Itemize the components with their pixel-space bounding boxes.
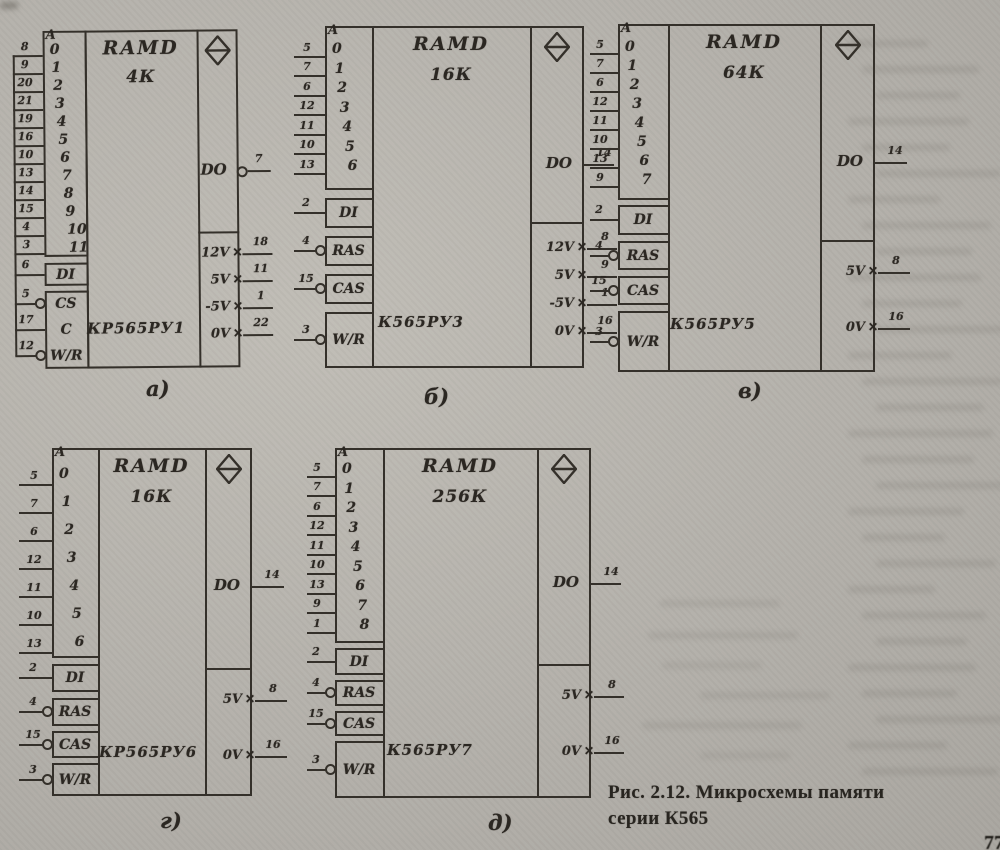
address-bit-label: 11 (69, 240, 89, 255)
address-pin-line (14, 181, 44, 183)
address-bit-label: 3 (67, 551, 77, 566)
control-pin-line (307, 692, 326, 694)
address-pin-number: 11 (291, 120, 323, 132)
output-column-divider (537, 664, 591, 666)
power-pin-line (255, 756, 287, 758)
address-pin-number: 9 (301, 598, 333, 610)
address-bit-label: 4 (351, 540, 361, 555)
control-label-W-R: W/R (45, 348, 87, 364)
address-bit-label: 5 (58, 132, 68, 147)
chip-capacity-label: 64К (668, 64, 820, 82)
output-column-divider (198, 231, 239, 233)
power-pin-line (255, 700, 287, 702)
address-pin-line (590, 53, 618, 55)
address-pin-line (14, 163, 44, 165)
chip-part-number: К565РУ7 (387, 742, 473, 758)
address-pin-number: 13 (584, 153, 616, 165)
address-pin-line (294, 134, 325, 136)
control-label-CAS: CAS (325, 281, 372, 297)
address-pin-number: 6 (18, 526, 50, 538)
address-bit-label: 10 (67, 222, 87, 237)
control-pin-number: 15 (18, 729, 48, 741)
control-pin-line (19, 677, 52, 679)
address-pin-line (590, 148, 618, 150)
power-pin-line (243, 307, 273, 309)
bleed-through-smudge (862, 378, 1000, 385)
power-input-mark: ✕ (245, 749, 255, 761)
output-label: DO (539, 575, 579, 590)
address-pin-line (19, 652, 52, 654)
power-label--5V: -5V (199, 299, 230, 314)
address-bit-label: 0 (625, 40, 635, 55)
address-bit-label: 1 (335, 62, 345, 77)
power-input-mark: ✕ (868, 265, 878, 277)
address-pin-line (19, 568, 52, 570)
power-pin-line (594, 752, 624, 754)
bleed-through-smudge (862, 690, 957, 697)
address-pin-number: 12 (301, 520, 333, 532)
control-label-DI: DI (335, 654, 383, 670)
chip-part-number: К565РУ5 (670, 316, 756, 332)
power-label-12V: 12V (530, 240, 574, 255)
address-pin-number: 6 (301, 501, 333, 513)
control-pin-line (307, 723, 326, 725)
power-pin-number: 16 (260, 739, 286, 751)
power-pin-line (594, 696, 624, 698)
bleed-through-smudge (848, 742, 947, 749)
power-label-5V: 5V (530, 268, 574, 283)
address-pin-line (307, 612, 335, 614)
control-pin-line (294, 339, 316, 341)
address-bit-label: 0 (332, 42, 342, 57)
chip-type-label: RAMD (383, 456, 537, 476)
chip-sublabel: в) (738, 380, 762, 402)
bleed-through-smudge (862, 534, 945, 541)
address-pin-number: 13 (301, 579, 333, 591)
address-pin-line (14, 199, 44, 201)
bleed-through-smudge (876, 716, 1000, 723)
control-pin-number: 12 (11, 340, 41, 352)
address-pin-line (307, 495, 335, 497)
chip-part-number: КР565РУ1 (87, 320, 185, 337)
address-bit-label: 6 (75, 635, 85, 650)
control-label-CAS: CAS (52, 737, 98, 753)
control-pin-line (307, 661, 335, 663)
control-pin-line (590, 290, 609, 292)
address-bit-label: 3 (55, 96, 65, 111)
address-pin-line (590, 110, 618, 112)
address-bit-label: 2 (346, 501, 356, 516)
address-port-header: A (45, 28, 55, 43)
address-pin-number: 12 (584, 96, 616, 108)
address-bit-label: 7 (642, 173, 652, 188)
address-pin-number: 10 (291, 139, 323, 151)
control-label-W-R: W/R (52, 772, 98, 788)
address-pin-number: 5 (18, 470, 50, 482)
power-label-5V: 5V (199, 272, 230, 287)
address-pin-line (307, 632, 335, 634)
chip-type-label: RAMD (98, 456, 205, 476)
bleed-through-smudge (700, 692, 830, 699)
address-bit-label: 5 (637, 135, 647, 150)
control-label-CAS: CAS (618, 283, 668, 299)
output-column-divider (820, 240, 875, 242)
control-pin-number: 3 (291, 324, 321, 336)
address-pin-number: 11 (584, 115, 616, 127)
address-pin-line (13, 73, 43, 75)
output-pin-number: 14 (260, 569, 284, 581)
power-pin-number: 8 (883, 255, 909, 267)
control-pin-line (294, 250, 316, 252)
power-pin-number: 1 (248, 290, 274, 302)
control-pin-number: 4 (291, 235, 321, 247)
bleed-through-smudge (642, 722, 802, 729)
address-port-header: A (55, 445, 65, 460)
chip-part-number: КР565РУ6 (99, 744, 197, 760)
bleed-through-smudge (862, 768, 998, 775)
address-bit-label: 4 (57, 114, 67, 129)
address-pin-line (307, 554, 335, 556)
address-pin-number: 12 (291, 100, 323, 112)
address-bit-label: 4 (69, 579, 79, 594)
address-pin-line (590, 186, 618, 188)
bleed-through-smudge (876, 482, 1000, 489)
power-pin-number: 22 (248, 317, 274, 329)
control-pin-number: 6 (10, 258, 40, 270)
address-bit-label: 3 (349, 521, 359, 536)
address-pin-line (294, 95, 325, 97)
output-label: DO (822, 154, 863, 169)
address-bit-label: 7 (62, 168, 72, 183)
power-label--5V: -5V (530, 296, 574, 311)
bleed-through-smudge (662, 662, 762, 669)
output-inversion-bubble (237, 166, 248, 177)
output-pin-line (248, 170, 271, 172)
address-pin-line (294, 56, 325, 58)
address-pin-number: 5 (291, 42, 323, 54)
chip-capacity-label: 256К (383, 488, 537, 506)
address-pin-line (294, 75, 325, 77)
address-pin-line (590, 72, 618, 74)
power-label-0V: 0V (199, 326, 230, 341)
tristate-output-icon (551, 454, 577, 484)
control-label-W-R: W/R (618, 334, 668, 350)
output-pin-line (875, 162, 907, 164)
control-pin-line (19, 744, 43, 746)
address-bit-label: 8 (64, 186, 74, 201)
control-label-W-R: W/R (335, 762, 383, 778)
address-bit-label: 3 (340, 101, 350, 116)
address-bit-label: 2 (53, 78, 63, 93)
bleed-through-smudge (848, 586, 935, 593)
address-pin-line (590, 167, 618, 169)
bleed-through-smudge (660, 600, 780, 607)
address-bit-label: 1 (344, 482, 354, 497)
control-pin-number: 17 (11, 314, 41, 326)
address-pin-number: 11 (18, 582, 50, 594)
control-pin-number: 5 (11, 288, 41, 300)
control-pin-line (15, 303, 36, 305)
address-bit-label: 9 (65, 204, 75, 219)
control-label-CAS: CAS (335, 716, 383, 732)
control-label-W-R: W/R (325, 332, 372, 348)
address-pin-number: 12 (18, 554, 50, 566)
address-pin-number: 6 (291, 81, 323, 93)
power-pin-number: 18 (247, 236, 273, 248)
address-pin-line (307, 593, 335, 595)
address-pin-line (14, 253, 44, 255)
address-bit-label: 6 (60, 150, 70, 165)
address-pin-line (13, 145, 43, 147)
control-label-DI: DI (618, 212, 668, 228)
control-pin-line (19, 779, 43, 781)
control-pin-line (590, 255, 609, 257)
address-pin-line (294, 173, 325, 175)
address-bit-label: 6 (348, 159, 358, 174)
power-pin-number: 8 (599, 679, 625, 691)
address-bit-label: 5 (72, 607, 82, 622)
control-pin-line (15, 355, 36, 357)
address-bit-label: 4 (342, 120, 352, 135)
address-bit-label: 5 (345, 140, 355, 155)
bleed-through-smudge (862, 612, 986, 619)
control-pin-number: 3 (584, 326, 614, 338)
control-pin-number: 2 (301, 646, 331, 658)
output-column-line (530, 26, 532, 368)
chip-sublabel: г) (160, 810, 182, 832)
control-label-RAS: RAS (335, 685, 383, 701)
power-pin-line (242, 253, 272, 255)
address-bit-label: 4 (635, 116, 645, 131)
address-bit-label: 5 (353, 560, 363, 575)
address-port-header: A (621, 21, 631, 36)
address-bit-label: 7 (357, 599, 367, 614)
address-bit-label: 0 (59, 467, 69, 482)
address-pin-number: 10 (18, 610, 50, 622)
power-pin-number: 16 (599, 735, 625, 747)
control-pin-number: 15 (584, 275, 614, 287)
chip-type-label: RAMD (668, 32, 820, 52)
address-pin-number: 1 (301, 618, 333, 630)
address-pin-number: 5 (584, 39, 616, 51)
control-pin-number: 4 (18, 696, 48, 708)
control-label-C: C (45, 322, 87, 338)
control-label-DI: DI (45, 266, 87, 282)
address-pin-line (14, 217, 44, 219)
address-pin-number: 7 (584, 58, 616, 70)
chip-К565РУ3: A051726312411510613DI2RAS4CAS15W/R3DO141… (292, 26, 627, 376)
control-pin-number: 15 (291, 273, 321, 285)
address-bit-label: 0 (342, 462, 352, 477)
page-number-fragment: 77 (984, 832, 1000, 850)
address-pin-number: 6 (584, 77, 616, 89)
power-input-mark: ✕ (233, 327, 243, 339)
address-pin-line (13, 127, 43, 129)
control-pin-number: 4 (301, 677, 331, 689)
tristate-output-icon (204, 35, 230, 65)
tristate-output-icon (216, 454, 242, 484)
chip-КР565РУ1: A0819220321419516610713814915104113DI6CS… (7, 29, 298, 377)
address-pin-line (19, 540, 52, 542)
address-pin-line (19, 596, 52, 598)
output-pin-line (252, 586, 284, 588)
address-pin-line (307, 573, 335, 575)
bleed-through-smudge (848, 508, 964, 515)
chip-capacity-label: 16К (372, 66, 530, 84)
control-pin-number: 2 (291, 197, 321, 209)
power-label-12V: 12V (198, 245, 229, 260)
address-pin-number: 7 (291, 61, 323, 73)
control-pin-number: 4 (584, 240, 614, 252)
control-pin-line (590, 219, 618, 221)
chip-sublabel: б) (424, 386, 449, 408)
output-label: DO (532, 156, 572, 171)
chip-capacity-label: 16К (98, 488, 205, 506)
output-column-divider (530, 222, 584, 224)
power-input-mark: ✕ (868, 321, 878, 333)
address-pin-line (19, 512, 52, 514)
control-pin-number: 3 (301, 754, 331, 766)
power-label-0V: 0V (205, 748, 242, 763)
address-pin-line (19, 624, 52, 626)
control-label-DI: DI (52, 670, 98, 686)
address-pin-number: 7 (18, 498, 50, 510)
power-pin-line (243, 280, 273, 282)
output-column-line (205, 448, 207, 796)
chip-capacity-label: 4К (85, 68, 197, 87)
power-label-0V: 0V (537, 744, 581, 759)
address-pin-line (294, 114, 325, 116)
control-label-DI: DI (325, 205, 372, 221)
address-pin-number: 7 (301, 481, 333, 493)
address-bit-label: 2 (630, 78, 640, 93)
power-input-mark: ✕ (584, 689, 594, 701)
bleed-through-smudge (700, 752, 790, 759)
scanned-figure-page: Рис. 2.12. Микросхемы памяти серии К565 … (0, 0, 1000, 850)
control-label-RAS: RAS (52, 704, 98, 720)
address-bit-label: 3 (632, 97, 642, 112)
control-pin-line (590, 341, 609, 343)
power-label-5V: 5V (820, 264, 865, 279)
address-bit-label: 2 (64, 523, 74, 538)
power-input-mark: ✕ (233, 300, 243, 312)
control-label-RAS: RAS (618, 248, 668, 264)
control-pin-number: 2 (584, 204, 614, 216)
output-column-divider (205, 668, 252, 670)
bleed-through-smudge (848, 664, 976, 671)
address-pin-line (13, 109, 43, 111)
bleed-through-smudge (0, 2, 18, 9)
address-bit-label: 1 (627, 59, 637, 74)
address-pin-number: 5 (301, 462, 333, 474)
chip-sublabel: а) (146, 378, 170, 400)
chip-sublabel: д) (488, 812, 513, 834)
power-input-mark: ✕ (232, 246, 242, 258)
address-pin-line (19, 484, 52, 486)
control-pin-line (15, 273, 45, 275)
power-pin-line (878, 328, 910, 330)
address-pin-line (13, 91, 43, 93)
address-pin-line (590, 129, 618, 131)
tristate-output-icon (835, 30, 861, 60)
output-pin-number: 7 (247, 153, 271, 165)
chip-type-label: RAMD (372, 34, 530, 54)
address-pin-number: 13 (291, 159, 323, 171)
power-label-5V: 5V (205, 692, 242, 707)
control-pin-line (294, 288, 316, 290)
control-pin-line (294, 212, 325, 214)
address-bit-label: 1 (62, 495, 72, 510)
chip-К565РУ5: A05172631241151061379DI2RAS4CAS15W/R3DO1… (590, 24, 928, 376)
address-pin-line (307, 476, 335, 478)
output-label: DO (200, 162, 227, 177)
address-pin-number: 11 (301, 540, 333, 552)
address-bit-label: 0 (50, 42, 60, 57)
bleed-through-smudge (876, 638, 967, 645)
control-label-CS: CS (45, 296, 87, 312)
power-input-mark: ✕ (577, 297, 587, 309)
power-pin-number: 11 (248, 263, 274, 275)
output-pin-number: 14 (883, 145, 907, 157)
address-pin-line (307, 534, 335, 536)
control-pin-line (15, 329, 45, 331)
address-bit-label: 1 (51, 60, 61, 75)
power-input-mark: ✕ (584, 745, 594, 757)
chip-type-label: RAMD (85, 38, 197, 59)
power-label-0V: 0V (530, 324, 574, 339)
control-pin-number: 2 (18, 662, 48, 674)
power-pin-line (878, 272, 910, 274)
bleed-through-smudge (876, 560, 996, 567)
chip-К565РУ7: A0517263124115106137981DI2RAS4CAS15W/R3D… (305, 448, 637, 806)
control-pin-line (19, 711, 43, 713)
power-pin-line (243, 334, 273, 336)
output-label: DO (207, 578, 240, 593)
address-port-header: A (328, 23, 338, 38)
address-port-header: A (338, 445, 348, 460)
figure-caption-line2: серии К565 (608, 806, 709, 832)
chip-part-number: К565РУ3 (378, 314, 464, 330)
address-bit-label: 8 (360, 618, 370, 633)
address-pin-number: 9 (584, 172, 616, 184)
address-pin-line (13, 55, 43, 57)
bleed-through-smudge (876, 404, 984, 411)
control-label-RAS: RAS (325, 243, 372, 259)
address-pin-number: 10 (584, 134, 616, 146)
address-pin-line (590, 91, 618, 93)
address-bit-label: 6 (355, 579, 365, 594)
bleed-through-smudge (848, 430, 993, 437)
tristate-output-icon (544, 32, 570, 62)
power-label-0V: 0V (820, 320, 865, 335)
output-pin-number: 14 (599, 566, 623, 578)
output-pin-line (591, 583, 621, 585)
power-input-mark: ✕ (233, 273, 243, 285)
power-pin-number: 8 (260, 683, 286, 695)
control-pin-number: 15 (301, 708, 331, 720)
address-pin-line (14, 235, 44, 237)
control-pin-line (307, 769, 326, 771)
power-input-mark: ✕ (245, 693, 255, 705)
address-pin-number: 8 (9, 41, 41, 53)
bleed-through-smudge (648, 632, 798, 639)
address-pin-line (307, 515, 335, 517)
power-label-5V: 5V (537, 688, 581, 703)
address-bit-label: 6 (639, 154, 649, 169)
address-pin-line (294, 153, 325, 155)
address-pin-number: 13 (18, 638, 50, 650)
power-pin-number: 16 (883, 311, 909, 323)
